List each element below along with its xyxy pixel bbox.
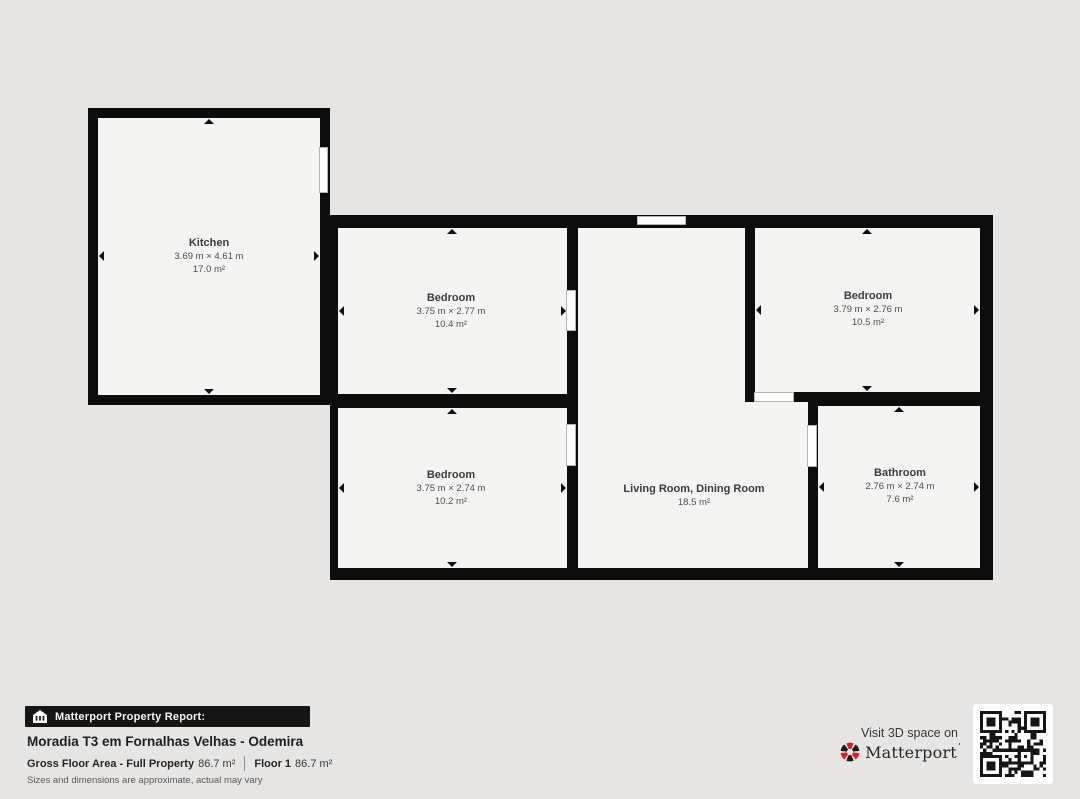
room-name: Kitchen [175,236,244,250]
floor-area-metrics: Gross Floor Area - Full Property 86.7 m²… [27,756,332,771]
room-dimensions: 3.75 m × 2.77 m [417,305,486,318]
qr-code-pattern [980,711,1046,777]
room-label-bedroom-top: Bedroom 3.75 m × 2.77 m 10.4 m² [417,291,486,331]
gross-floor-area-label: Gross Floor Area - Full Property [27,758,194,770]
dimension-arrow-right-icon [561,306,566,316]
room-area: 10.5 m² [834,316,903,329]
room-area: 18.5 m² [623,496,764,509]
dimension-arrow-right-icon [974,305,979,315]
dimension-arrow-down-icon [447,388,457,393]
room-dimensions: 2.76 m × 2.74 m [866,480,935,493]
dimension-arrow-left-icon [819,482,824,492]
room-name: Bedroom [417,291,486,305]
visit-3d-space-text: Visit 3D space on [861,726,958,740]
kitchen-window [319,147,328,193]
dimension-arrow-left-icon [339,483,344,493]
front-door-opening [637,216,686,225]
dimension-arrow-down-icon [204,389,214,394]
dimension-arrow-right-icon [974,482,979,492]
room-label-kitchen: Kitchen 3.69 m × 4.61 m 17.0 m² [175,236,244,276]
room-name: Bedroom [417,468,486,482]
vertical-divider [244,756,245,771]
dimension-arrow-up-icon [862,229,872,234]
matterport-wordmark: Matterport’ [865,743,961,762]
property-title: Moradia T3 em Fornalhas Velhas - Odemira [27,734,303,749]
floor-value: 86.7 m² [295,758,332,770]
bathroom-door-opening [807,425,817,467]
badge-label: Matterport Property Report: [55,711,205,723]
trademark-tick: ’ [958,743,961,753]
room-area: 7.6 m² [866,493,935,506]
room-label-living: Living Room, Dining Room 18.5 m² [623,482,764,509]
room-name: Bedroom [834,289,903,303]
dimension-arrow-up-icon [894,407,904,412]
dimension-arrow-down-icon [447,562,457,567]
floor-plan-page: { "floorplan": { "rooms": { "kitchen": {… [0,0,1080,799]
room-label-bathroom: Bathroom 2.76 m × 2.74 m 7.6 m² [866,466,935,506]
dimension-arrow-right-icon [314,251,319,261]
dimension-arrow-down-icon [894,562,904,567]
room-dimensions: 3.69 m × 4.61 m [175,250,244,263]
room-label-bedroom-right: Bedroom 3.79 m × 2.76 m 10.5 m² [834,289,903,329]
room-label-bedroom-bottom: Bedroom 3.75 m × 2.74 m 10.2 m² [417,468,486,508]
dimension-arrow-up-icon [447,229,457,234]
room-living-upper [578,228,745,568]
property-report-badge: Matterport Property Report: [25,706,310,727]
dimension-arrow-up-icon [204,119,214,124]
room-area: 10.2 m² [417,495,486,508]
house-icon [33,710,47,723]
dimension-arrow-down-icon [862,386,872,391]
room-name: Bathroom [866,466,935,480]
room-dimensions: 3.79 m × 2.76 m [834,303,903,316]
dimension-arrow-left-icon [339,306,344,316]
dimension-arrow-left-icon [99,251,104,261]
room-dimensions: 3.75 m × 2.74 m [417,482,486,495]
room-area: 10.4 m² [417,318,486,331]
bedroom-top-door-opening [566,290,576,331]
dimension-arrow-left-icon [756,305,761,315]
matterport-logo-icon [840,742,860,762]
qr-code [973,704,1053,784]
bedroom-right-door-opening [754,392,794,402]
room-name: Living Room, Dining Room [623,482,764,496]
disclaimer-text: Sizes and dimensions are approximate, ac… [27,775,263,786]
matterport-logo: Matterport’ [840,742,961,762]
floor-plan: Kitchen 3.69 m × 4.61 m 17.0 m² Bedroom … [0,0,1080,799]
bedroom-bottom-door-opening [566,424,576,466]
dimension-arrow-right-icon [561,483,566,493]
dimension-arrow-up-icon [447,409,457,414]
gross-floor-area-value: 86.7 m² [198,758,235,770]
room-area: 17.0 m² [175,263,244,276]
floor-label: Floor 1 [254,758,291,770]
